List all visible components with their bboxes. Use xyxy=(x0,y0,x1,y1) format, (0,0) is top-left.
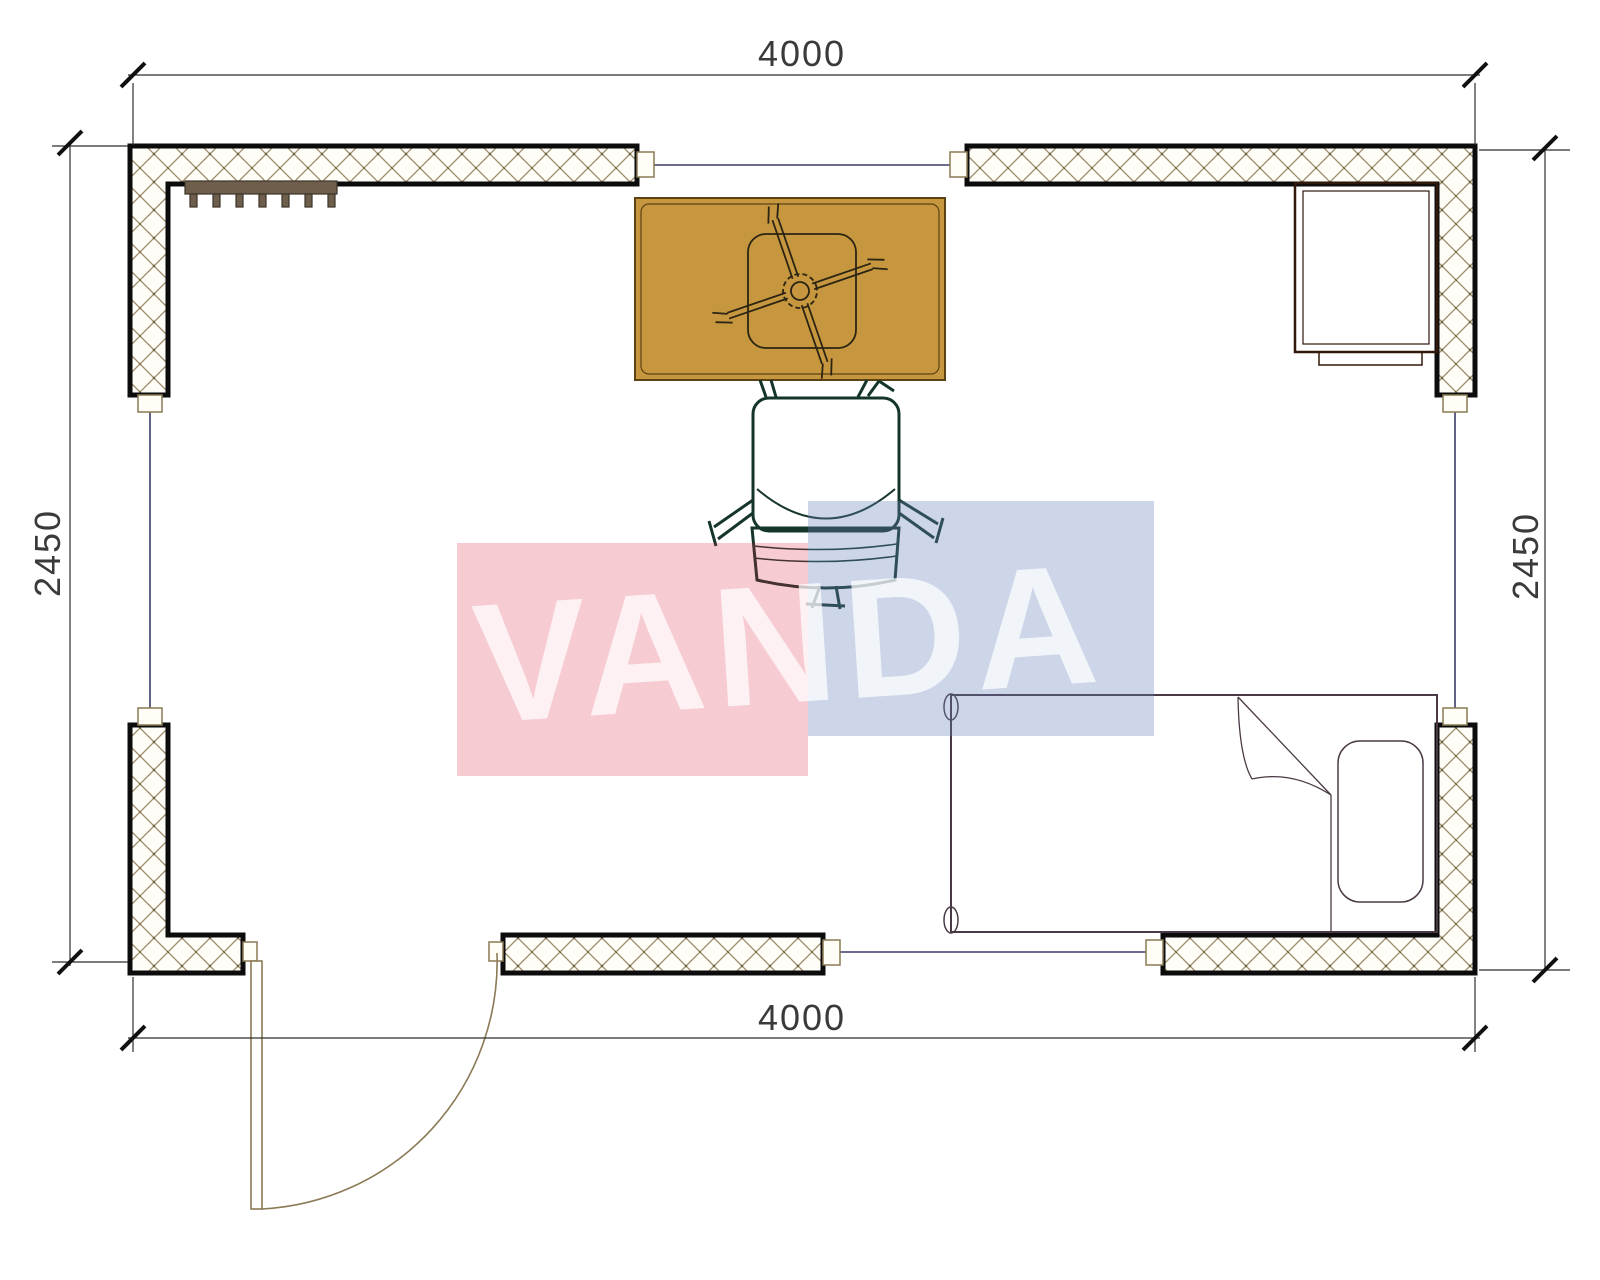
dimension-label-bottom: 4000 xyxy=(758,997,846,1038)
desk-drawer-tab xyxy=(1319,352,1422,365)
door-swing-arc xyxy=(262,953,497,1209)
dimension-right: 2450 xyxy=(1479,136,1570,982)
watermark: VANDA xyxy=(457,501,1154,776)
armchair-top-left-foot xyxy=(760,380,776,397)
floor-plan-drawing: VANDA 4000 4000 2450 2450 xyxy=(0,0,1600,1280)
wall-end-cap xyxy=(138,708,162,725)
radiator-leg xyxy=(282,194,289,207)
radiator-leg xyxy=(190,194,197,207)
armchair-left-arm xyxy=(709,500,753,546)
wall-end-cap xyxy=(1443,395,1467,412)
desk-top xyxy=(1295,183,1437,352)
desk xyxy=(1295,183,1437,365)
radiator xyxy=(185,181,337,207)
door xyxy=(243,942,503,1209)
wall-end-cap xyxy=(1443,708,1467,725)
radiator-leg xyxy=(328,194,335,207)
wall-end-cap xyxy=(1146,940,1163,965)
table xyxy=(635,177,945,406)
radiator-leg xyxy=(213,194,220,207)
radiator-leg xyxy=(305,194,312,207)
floor-plan-canvas: VANDA 4000 4000 2450 2450 xyxy=(0,0,1600,1280)
wall-end-cap xyxy=(823,940,840,965)
wall-end-cap xyxy=(138,395,162,412)
radiator-leg xyxy=(259,194,266,207)
wall-bottom-middle xyxy=(503,935,823,973)
bed-blanket-fold xyxy=(1252,777,1331,795)
dimension-label-left: 2450 xyxy=(27,509,68,597)
armchair-top-right-foot xyxy=(858,380,894,397)
dimension-bottom: 4000 xyxy=(121,977,1487,1052)
dimension-left: 2450 xyxy=(27,131,128,974)
wall-bottom-right xyxy=(1163,725,1475,973)
table-top xyxy=(635,198,945,380)
bed-pillow xyxy=(1338,741,1423,902)
bed-blanket-fold xyxy=(1238,697,1331,795)
dimension-label-top: 4000 xyxy=(758,33,846,74)
dimension-label-right: 2450 xyxy=(1505,512,1546,600)
wall-end-cap xyxy=(637,152,654,177)
dimension-top: 4000 xyxy=(121,33,1487,145)
wall-end-cap xyxy=(950,152,967,177)
door-frame-right xyxy=(489,942,503,961)
desk-inner-edge xyxy=(1303,191,1429,344)
door-leaf xyxy=(251,961,262,1209)
door-frame-left xyxy=(243,942,257,961)
radiator-leg xyxy=(236,194,243,207)
wall-bottom-left xyxy=(130,725,243,973)
radiator-bar xyxy=(185,181,337,194)
